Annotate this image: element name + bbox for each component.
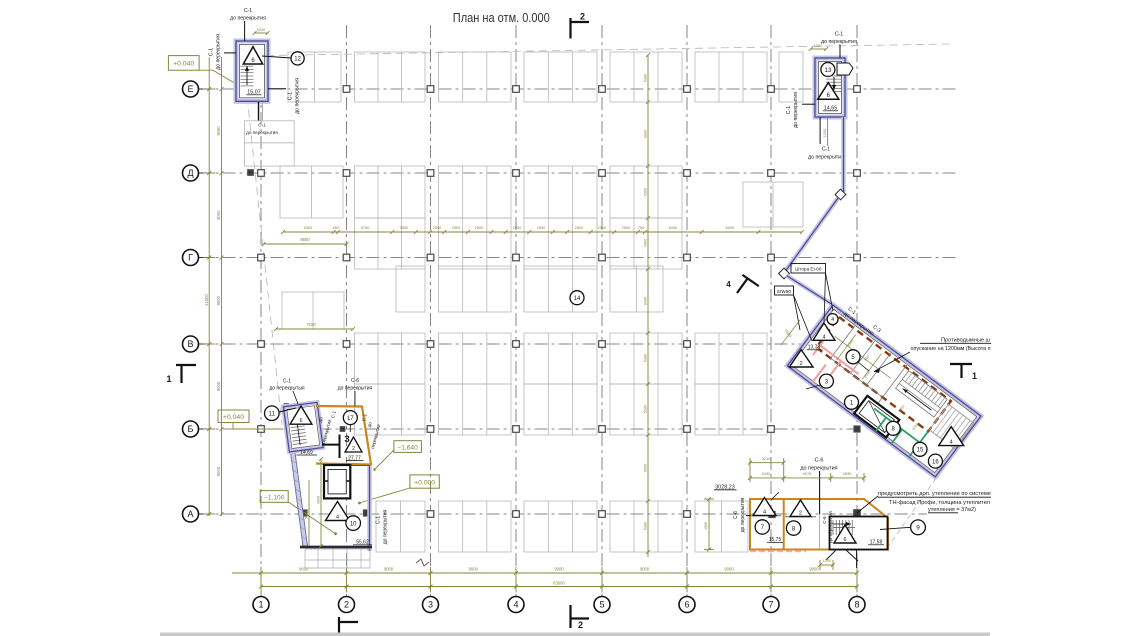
svg-text:А: А [187,509,193,519]
svg-text:1250: 1250 [823,559,831,563]
svg-text:16: 16 [932,459,939,465]
svg-text:Д: Д [187,168,193,178]
svg-text:13: 13 [824,67,832,74]
svg-text:2835: 2835 [843,471,853,476]
svg-text:2500: 2500 [537,225,546,230]
svg-text:750: 750 [638,225,645,230]
svg-text:С-6: С-6 [351,378,359,384]
svg-text:17: 17 [347,416,354,422]
svg-text:9000: 9000 [216,126,221,136]
svg-text:5400: 5400 [305,511,309,519]
svg-text:6000: 6000 [669,225,678,230]
svg-text:+0,000: +0,000 [414,480,435,487]
svg-text:1: 1 [258,600,263,610]
svg-text:В: В [187,339,193,349]
svg-text:до перекрытия: до перекрытия [740,497,746,532]
svg-text:3: 3 [428,600,433,610]
svg-text:3430: 3430 [762,471,772,476]
svg-text:9000: 9000 [643,463,648,472]
svg-text:до перекрытия: до перекрытия [295,78,301,114]
svg-text:2500: 2500 [452,225,461,230]
svg-text:5300: 5300 [643,238,648,247]
svg-text:3000: 3000 [317,496,321,504]
svg-text:5300: 5300 [643,73,648,82]
svg-text:2: 2 [344,600,349,610]
svg-text:до перекрытия: до перекрытия [216,34,222,70]
svg-text:С-1: С-1 [283,379,291,385]
svg-text:4905: 4905 [704,522,708,530]
svg-text:5300: 5300 [643,187,648,196]
svg-text:6: 6 [684,600,689,610]
svg-text:2500: 2500 [475,225,484,230]
svg-text:9000: 9000 [216,295,221,305]
svg-text:до перекрытия: до перекрытия [338,386,373,392]
svg-text:7150: 7150 [306,322,316,327]
svg-text:2: 2 [578,620,583,630]
svg-text:4: 4 [763,510,766,516]
svg-text:1200: 1200 [823,129,827,137]
svg-text:8850: 8850 [300,237,310,242]
svg-text:5300: 5300 [643,404,648,413]
svg-text:6: 6 [299,418,302,424]
svg-text:до перекрытия: до перекрытия [828,511,833,543]
svg-text:2500: 2500 [575,225,584,230]
svg-text:9000: 9000 [554,567,564,572]
svg-text:9000: 9000 [724,567,734,572]
svg-text:С-6: С-6 [733,511,739,519]
svg-text:2: 2 [799,511,802,517]
svg-text:1: 1 [166,374,171,384]
svg-text:9000: 9000 [643,296,648,305]
svg-text:10: 10 [350,521,357,527]
svg-text:9000: 9000 [640,567,650,572]
svg-text:7: 7 [768,600,773,610]
svg-text:С-1: С-1 [376,516,382,524]
svg-text:С-6: С-6 [815,458,824,464]
svg-text:Штора EI-60: Штора EI-60 [795,267,822,272]
svg-text:2: 2 [352,446,355,452]
svg-text:до перекрытыя: до перекрытыя [269,386,305,392]
svg-text:2500: 2500 [513,225,522,230]
svg-text:9000: 9000 [643,129,648,138]
svg-text:Е: Е [187,84,193,94]
svg-text:С-1: С-1 [244,8,252,14]
svg-text:2: 2 [580,12,585,22]
svg-text:15: 15 [917,447,924,453]
svg-text:8: 8 [854,600,859,610]
svg-text:ТН-фасад Профи, толщина утепли: ТН-фасад Профи, толщина утеплител [889,500,990,506]
svg-text:+0,040: +0,040 [223,414,244,421]
svg-text:41500: 41500 [204,294,209,306]
svg-text:4: 4 [831,317,834,323]
svg-text:9000: 9000 [216,210,221,220]
svg-text:С-1: С-1 [209,48,215,56]
svg-text:до перекрытия: до перекрытия [246,130,278,135]
svg-text:утепления = 37м2): утепления = 37м2) [928,507,976,513]
svg-text:Г: Г [188,253,193,263]
svg-text:6: 6 [843,537,846,543]
svg-text:450: 450 [332,225,339,230]
svg-text:до перекрытия: до перекрытия [230,16,266,22]
svg-text:Противодымные ш: Противодымные ш [941,338,990,344]
svg-text:9000: 9000 [469,567,479,572]
svg-text:до перекрытия: до перекрытия [793,92,799,128]
svg-text:63000: 63000 [553,580,565,585]
svg-text:5300: 5300 [304,225,313,230]
svg-text:9000: 9000 [299,567,309,572]
svg-text:опускание на 1200мм (Высота п: опускание на 1200мм (Высота п [911,346,991,352]
svg-text:2: 2 [800,361,803,367]
svg-text:EIW60: EIW60 [777,289,791,294]
svg-text:9000: 9000 [809,567,819,572]
svg-text:Б: Б [188,424,194,434]
svg-text:С-1: С-1 [288,92,294,100]
svg-text:План на отм. 0.000: План на отм. 0.000 [453,11,550,25]
svg-text:4: 4 [950,440,953,446]
svg-text:+0,040: +0,040 [173,60,194,67]
svg-text:1200: 1200 [257,28,265,32]
svg-text:5300: 5300 [643,521,648,530]
svg-text:12: 12 [294,57,301,63]
svg-text:С-1: С-1 [822,146,830,152]
svg-text:9000: 9000 [216,381,221,391]
svg-text:4: 4 [336,515,339,521]
svg-text:5300: 5300 [643,353,648,362]
svg-text:4: 4 [513,600,518,610]
svg-text:предусмотреть доп. утепление п: предусмотреть доп. утепление по системе [878,491,991,497]
svg-text:до перекрытия: до перекрытия [383,509,389,544]
svg-text:до перекрытия: до перекрытия [808,155,844,161]
svg-text:4: 4 [726,280,731,289]
svg-text:1200: 1200 [814,44,822,48]
svg-text:2500: 2500 [622,225,631,230]
svg-text:3: 3 [344,434,349,445]
svg-text:до перекрытия: до перекрытия [821,39,857,45]
svg-text:9000: 9000 [216,466,221,476]
svg-text:9: 9 [916,525,920,532]
svg-text:4: 4 [822,334,825,340]
svg-text:1: 1 [972,371,977,381]
svg-text:−1,640: −1,640 [397,445,418,452]
svg-text:−1,100: −1,100 [264,494,285,501]
svg-text:С-1: С-1 [835,32,843,38]
svg-text:С-1: С-1 [258,123,266,128]
svg-text:14: 14 [574,296,581,302]
svg-text:С-1: С-1 [786,106,792,114]
svg-text:4975: 4975 [803,471,813,476]
svg-text:С-6: С-6 [822,516,827,524]
svg-text:11: 11 [269,411,276,417]
svg-text:5750: 5750 [361,225,370,230]
svg-text:6000: 6000 [726,225,735,230]
svg-text:2500: 2500 [400,225,409,230]
svg-text:3210: 3210 [762,456,772,461]
svg-text:5: 5 [599,600,604,610]
svg-text:2500: 2500 [433,225,442,230]
svg-text:2500: 2500 [598,225,607,230]
svg-text:9000: 9000 [384,567,394,572]
